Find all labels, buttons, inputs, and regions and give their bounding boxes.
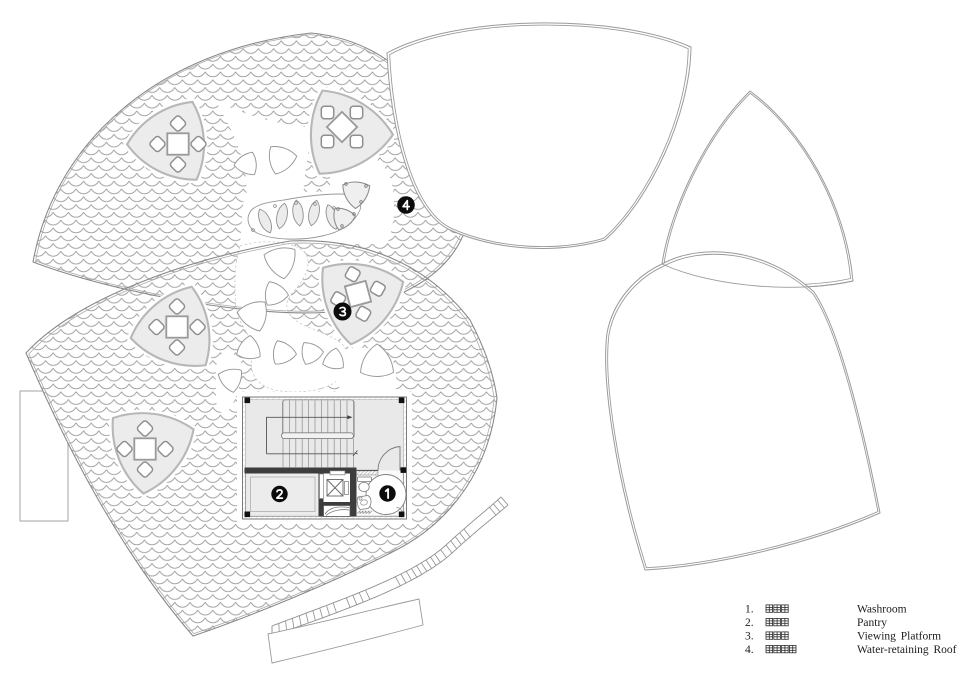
svg-text:Pantry: Pantry bbox=[857, 617, 887, 629]
svg-text:4.: 4. bbox=[745, 644, 754, 656]
svg-text:Viewing Platform: Viewing Platform bbox=[857, 631, 941, 643]
svg-text:Washroom: Washroom bbox=[857, 604, 907, 616]
svg-text:Water-retaining Roof: Water-retaining Roof bbox=[857, 644, 957, 656]
svg-text:1.: 1. bbox=[745, 604, 754, 616]
svg-text:3.: 3. bbox=[745, 631, 754, 643]
svg-text:2.: 2. bbox=[745, 617, 754, 629]
